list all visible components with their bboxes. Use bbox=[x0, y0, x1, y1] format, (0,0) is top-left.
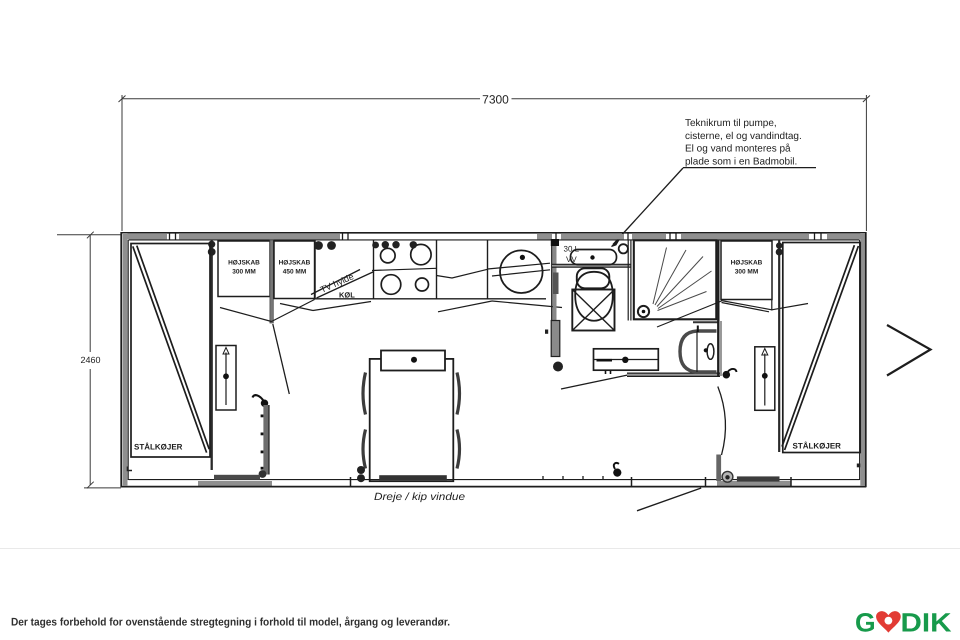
svg-text:plade som i en Badmobil.: plade som i en Badmobil. bbox=[685, 156, 797, 167]
svg-text:KØL: KØL bbox=[339, 291, 355, 300]
svg-text:G: G bbox=[855, 608, 876, 638]
svg-text:300 MM: 300 MM bbox=[232, 269, 255, 276]
svg-text:HØJSKAB: HØJSKAB bbox=[279, 260, 311, 267]
svg-text:cisterne, el og vandindtag.: cisterne, el og vandindtag. bbox=[685, 131, 802, 142]
svg-text:HØJSKAB: HØJSKAB bbox=[228, 260, 260, 267]
svg-text:Teknikrum til pumpe,: Teknikrum til pumpe, bbox=[685, 118, 777, 129]
svg-text:450 MM: 450 MM bbox=[283, 269, 306, 276]
svg-text:El og vand monteres på: El og vand monteres på bbox=[685, 143, 791, 155]
svg-text:Der tages forbehold for ovenst: Der tages forbehold for ovenstående stre… bbox=[11, 616, 450, 629]
svg-text:HØJSKAB: HØJSKAB bbox=[731, 260, 763, 267]
svg-text:7300: 7300 bbox=[482, 93, 509, 107]
svg-text:STÅLKØJER: STÅLKØJER bbox=[134, 442, 183, 452]
svg-text:300 MM: 300 MM bbox=[735, 269, 758, 276]
svg-text:Dreje / kip vindue: Dreje / kip vindue bbox=[374, 491, 465, 503]
svg-text:DIK: DIK bbox=[901, 608, 952, 638]
svg-text:2460: 2460 bbox=[80, 355, 100, 365]
svg-text:STÅLKØJER: STÅLKØJER bbox=[793, 441, 842, 451]
